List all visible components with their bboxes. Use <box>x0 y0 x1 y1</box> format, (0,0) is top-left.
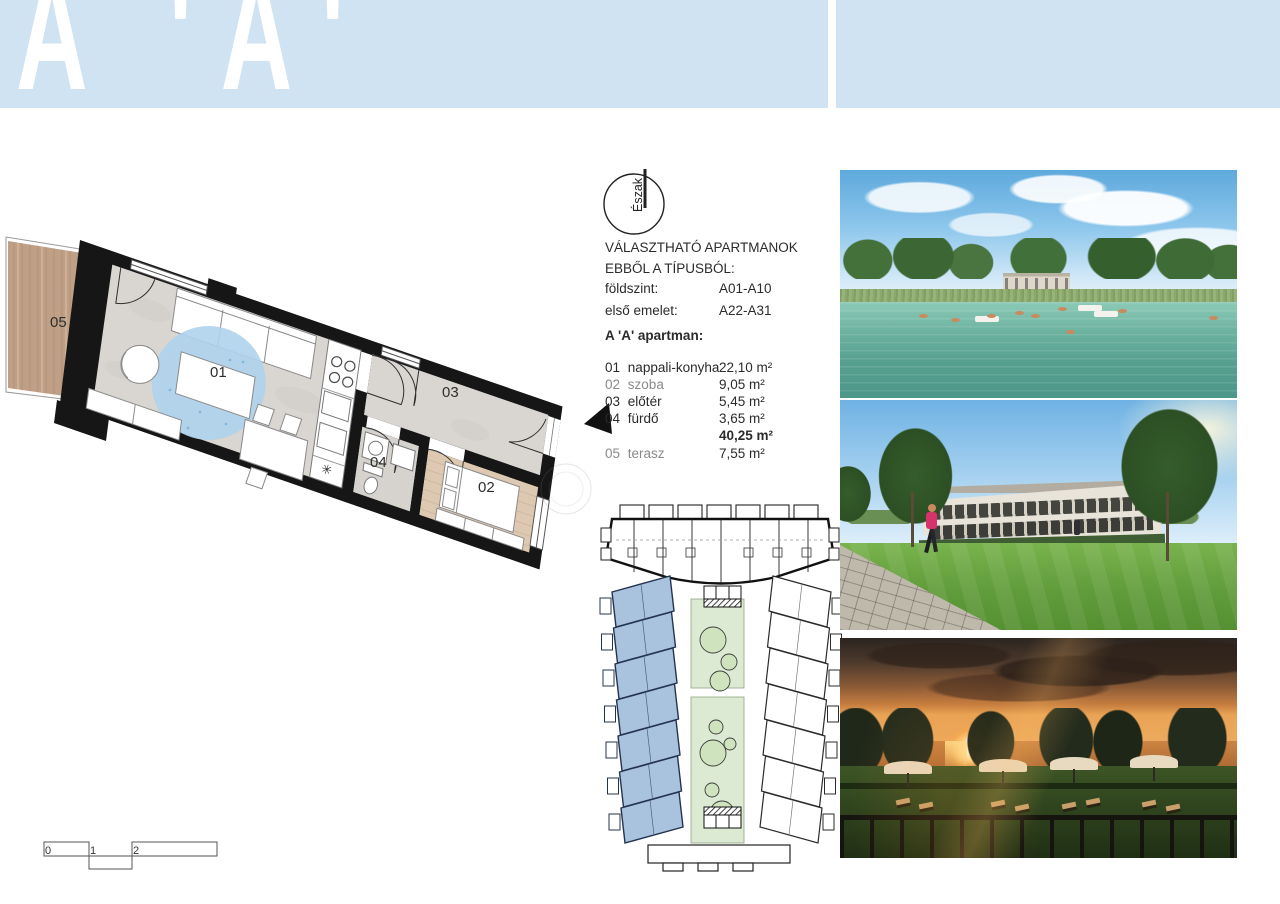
tree-trunk <box>911 492 914 547</box>
room-num: 01 <box>605 360 620 375</box>
scale-bar <box>44 842 217 869</box>
tree-trunk <box>1166 492 1169 561</box>
room-name: fürdő <box>628 411 659 426</box>
scale-0: 0 <box>45 845 51 857</box>
brochure-page: A 'A' <box>0 0 1280 904</box>
room-name: szoba <box>628 377 664 392</box>
top-unit-band <box>606 519 834 584</box>
room-name: terasz <box>628 446 665 461</box>
scale-1: 1 <box>90 845 96 857</box>
watermark <box>541 464 591 514</box>
room-row: 02 szoba 9,05 m² <box>605 377 815 392</box>
header-band-right <box>836 0 1280 108</box>
total-area: 40,25 m² <box>719 428 773 443</box>
bottom-connector <box>648 845 790 871</box>
room-num: 02 <box>605 377 620 392</box>
float-mat <box>1078 305 1102 311</box>
north-label: Észak <box>630 177 645 212</box>
tree <box>1102 400 1237 547</box>
label-living: 01 <box>210 364 227 381</box>
ground-floor-value: A01-A10 <box>719 281 772 296</box>
room-area: 7,55 m² <box>719 446 765 461</box>
pillow <box>445 466 459 488</box>
room-row: 03 előtér 5,45 m² <box>605 394 815 409</box>
swimmer <box>1058 307 1067 311</box>
swimmer <box>987 314 996 318</box>
tree <box>840 455 880 533</box>
room-area: 9,05 m² <box>719 377 765 392</box>
render-photo-lake <box>840 170 1237 398</box>
render-photo-building <box>840 400 1237 630</box>
first-floor-label: első emelet: <box>605 303 678 318</box>
floor-plan: ✳ 05 01 03 04 02 <box>0 140 620 880</box>
north-indicator: Észak <box>602 166 674 246</box>
terrace-row: 05 terasz 7,55 m² <box>605 446 815 461</box>
person-far <box>1074 520 1080 535</box>
room-area: 3,65 m² <box>719 411 765 426</box>
ground-floor-label: földszint: <box>605 281 658 296</box>
courtyard <box>691 599 744 843</box>
site-plan <box>598 493 844 873</box>
swimmer <box>1118 309 1127 313</box>
availability-line2: EBBŐL A TÍPUSBÓL: <box>605 261 735 276</box>
room-num: 03 <box>605 394 620 409</box>
apartment-heading: A 'A' apartman: <box>605 328 703 343</box>
top-balconies <box>620 505 818 520</box>
swimmer <box>1066 330 1075 334</box>
float-mat <box>1094 311 1118 317</box>
first-floor-row: első emelet: A22-A31 <box>605 303 815 318</box>
light-rays <box>840 638 1237 858</box>
page-title: A 'A' <box>16 0 373 108</box>
armchair <box>121 345 159 383</box>
ground-floor-row: földszint: A01-A10 <box>605 281 815 296</box>
label-bath: 04 <box>370 454 387 471</box>
first-floor-value: A22-A31 <box>719 303 772 318</box>
label-hall: 03 <box>442 384 459 401</box>
swimmer <box>1209 316 1218 320</box>
room-row: 04 fürdő 3,65 m² <box>605 411 815 426</box>
label-terrace: 05 <box>50 314 67 331</box>
render-photo-sunset <box>840 638 1237 858</box>
pillow <box>442 488 456 510</box>
jogger <box>923 504 941 562</box>
room-row: 01 nappali-konyha 22,10 m² <box>605 360 815 375</box>
room-num: 05 <box>605 446 620 461</box>
scale-2: 2 <box>133 845 139 857</box>
info-column: VÁLASZTHATÓ APARTMANOK EBBŐL A TÍPUSBÓL:… <box>605 238 815 498</box>
header-band-left: A 'A' <box>0 0 828 108</box>
label-bedroom: 02 <box>478 479 495 496</box>
room-num: 04 <box>605 411 620 426</box>
room-area: 22,10 m² <box>719 360 772 375</box>
swimmer <box>1031 314 1040 318</box>
availability-line1: VÁLASZTHATÓ APARTMANOK <box>605 240 798 255</box>
swimmer <box>919 314 928 318</box>
room-name: előtér <box>628 394 662 409</box>
room-name: nappali-konyha <box>628 360 720 375</box>
room-area: 5,45 m² <box>719 394 765 409</box>
